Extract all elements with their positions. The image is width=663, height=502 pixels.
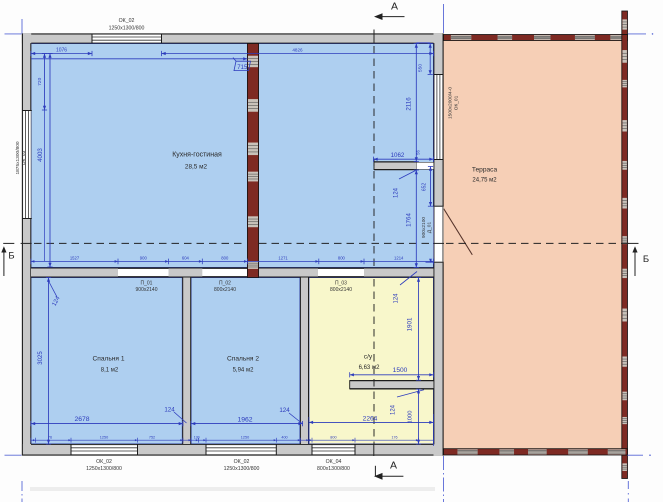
svg-text:124: 124 (279, 407, 290, 414)
svg-text:Спальня 2: Спальня 2 (227, 356, 259, 363)
svg-text:800: 800 (338, 256, 346, 261)
svg-text:550: 550 (417, 64, 423, 72)
svg-text:1250х1300/800: 1250х1300/800 (224, 466, 260, 472)
svg-text:800: 800 (221, 256, 229, 261)
svg-text:604: 604 (182, 256, 190, 261)
svg-text:ОК_02: ОК_02 (119, 18, 135, 24)
svg-text:Терраса: Терраса (472, 167, 498, 174)
svg-text:720: 720 (37, 77, 43, 85)
svg-text:1214: 1214 (394, 256, 404, 261)
svg-text:П_01: П_01 (141, 281, 153, 287)
svg-text:1901: 1901 (406, 317, 413, 331)
svg-text:124: 124 (394, 293, 400, 304)
svg-text:800х2140: 800х2140 (214, 287, 236, 293)
svg-text:ОК_02: ОК_02 (96, 459, 112, 465)
svg-text:1250х1300/800: 1250х1300/800 (109, 25, 145, 31)
svg-text:ОК_03: ОК_03 (21, 150, 27, 165)
svg-text:900х2140: 900х2140 (136, 287, 158, 293)
svg-text:1076: 1076 (56, 48, 67, 54)
svg-text:6,63 м2: 6,63 м2 (359, 365, 380, 371)
svg-text:900х2100: 900х2100 (421, 217, 427, 238)
svg-text:А: А (391, 1, 398, 13)
svg-text:Спальня 1: Спальня 1 (93, 356, 125, 363)
svg-text:2678: 2678 (74, 416, 89, 423)
svg-text:П_02: П_02 (219, 281, 231, 287)
svg-text:1527: 1527 (70, 256, 80, 261)
svg-text:76: 76 (48, 435, 52, 439)
svg-text:176: 176 (392, 435, 398, 439)
svg-text:А: А (390, 459, 397, 471)
svg-text:4003: 4003 (37, 148, 44, 162)
svg-text:1250: 1250 (100, 435, 108, 439)
svg-text:24,75 м2: 24,75 м2 (472, 178, 497, 184)
svg-text:1500: 1500 (393, 367, 408, 374)
svg-text:130: 130 (194, 435, 200, 439)
svg-text:900: 900 (140, 256, 148, 261)
svg-text:752: 752 (149, 435, 155, 439)
svg-text:1500х2000/4-0: 1500х2000/4-0 (448, 87, 454, 119)
svg-text:1250: 1250 (241, 435, 249, 439)
svg-text:1062: 1062 (391, 152, 405, 159)
svg-text:124: 124 (390, 404, 396, 415)
svg-text:П_03: П_03 (335, 281, 347, 287)
svg-text:ОК_02: ОК_02 (234, 459, 250, 465)
svg-text:Кухня-гостиная: Кухня-гостиная (172, 152, 222, 159)
svg-text:1000: 1000 (407, 411, 413, 424)
svg-text:124: 124 (164, 407, 175, 414)
svg-text:1962: 1962 (237, 416, 252, 423)
svg-text:Д_01: Д_01 (427, 222, 433, 234)
svg-text:400: 400 (281, 435, 287, 439)
svg-text:1764: 1764 (405, 213, 412, 227)
svg-text:Б: Б (643, 254, 649, 265)
svg-text:ОК_04: ОК_04 (326, 459, 342, 465)
svg-text:4826: 4826 (292, 48, 303, 53)
svg-text:с/у: с/у (364, 354, 373, 361)
svg-text:8,1 м2: 8,1 м2 (101, 368, 119, 374)
svg-text:1875х1300/800: 1875х1300/800 (15, 141, 21, 174)
svg-text:800: 800 (330, 435, 336, 439)
svg-text:2116: 2116 (405, 97, 412, 111)
svg-text:715: 715 (237, 65, 248, 71)
svg-text:56: 56 (416, 150, 421, 155)
svg-text:1271: 1271 (278, 256, 288, 261)
svg-text:800х2140: 800х2140 (330, 287, 352, 293)
svg-text:28,5 м2: 28,5 м2 (185, 164, 208, 171)
svg-text:1250х1300/800: 1250х1300/800 (86, 466, 122, 472)
svg-text:5,94 м2: 5,94 м2 (233, 368, 254, 374)
svg-text:3025: 3025 (38, 351, 44, 365)
svg-text:800х1300/800: 800х1300/800 (317, 466, 350, 472)
svg-text:124: 124 (394, 187, 400, 198)
svg-text:652: 652 (422, 183, 428, 192)
svg-text:Б: Б (8, 251, 14, 262)
svg-text:ОК_01: ОК_01 (454, 95, 460, 110)
svg-text:2264: 2264 (363, 415, 378, 422)
